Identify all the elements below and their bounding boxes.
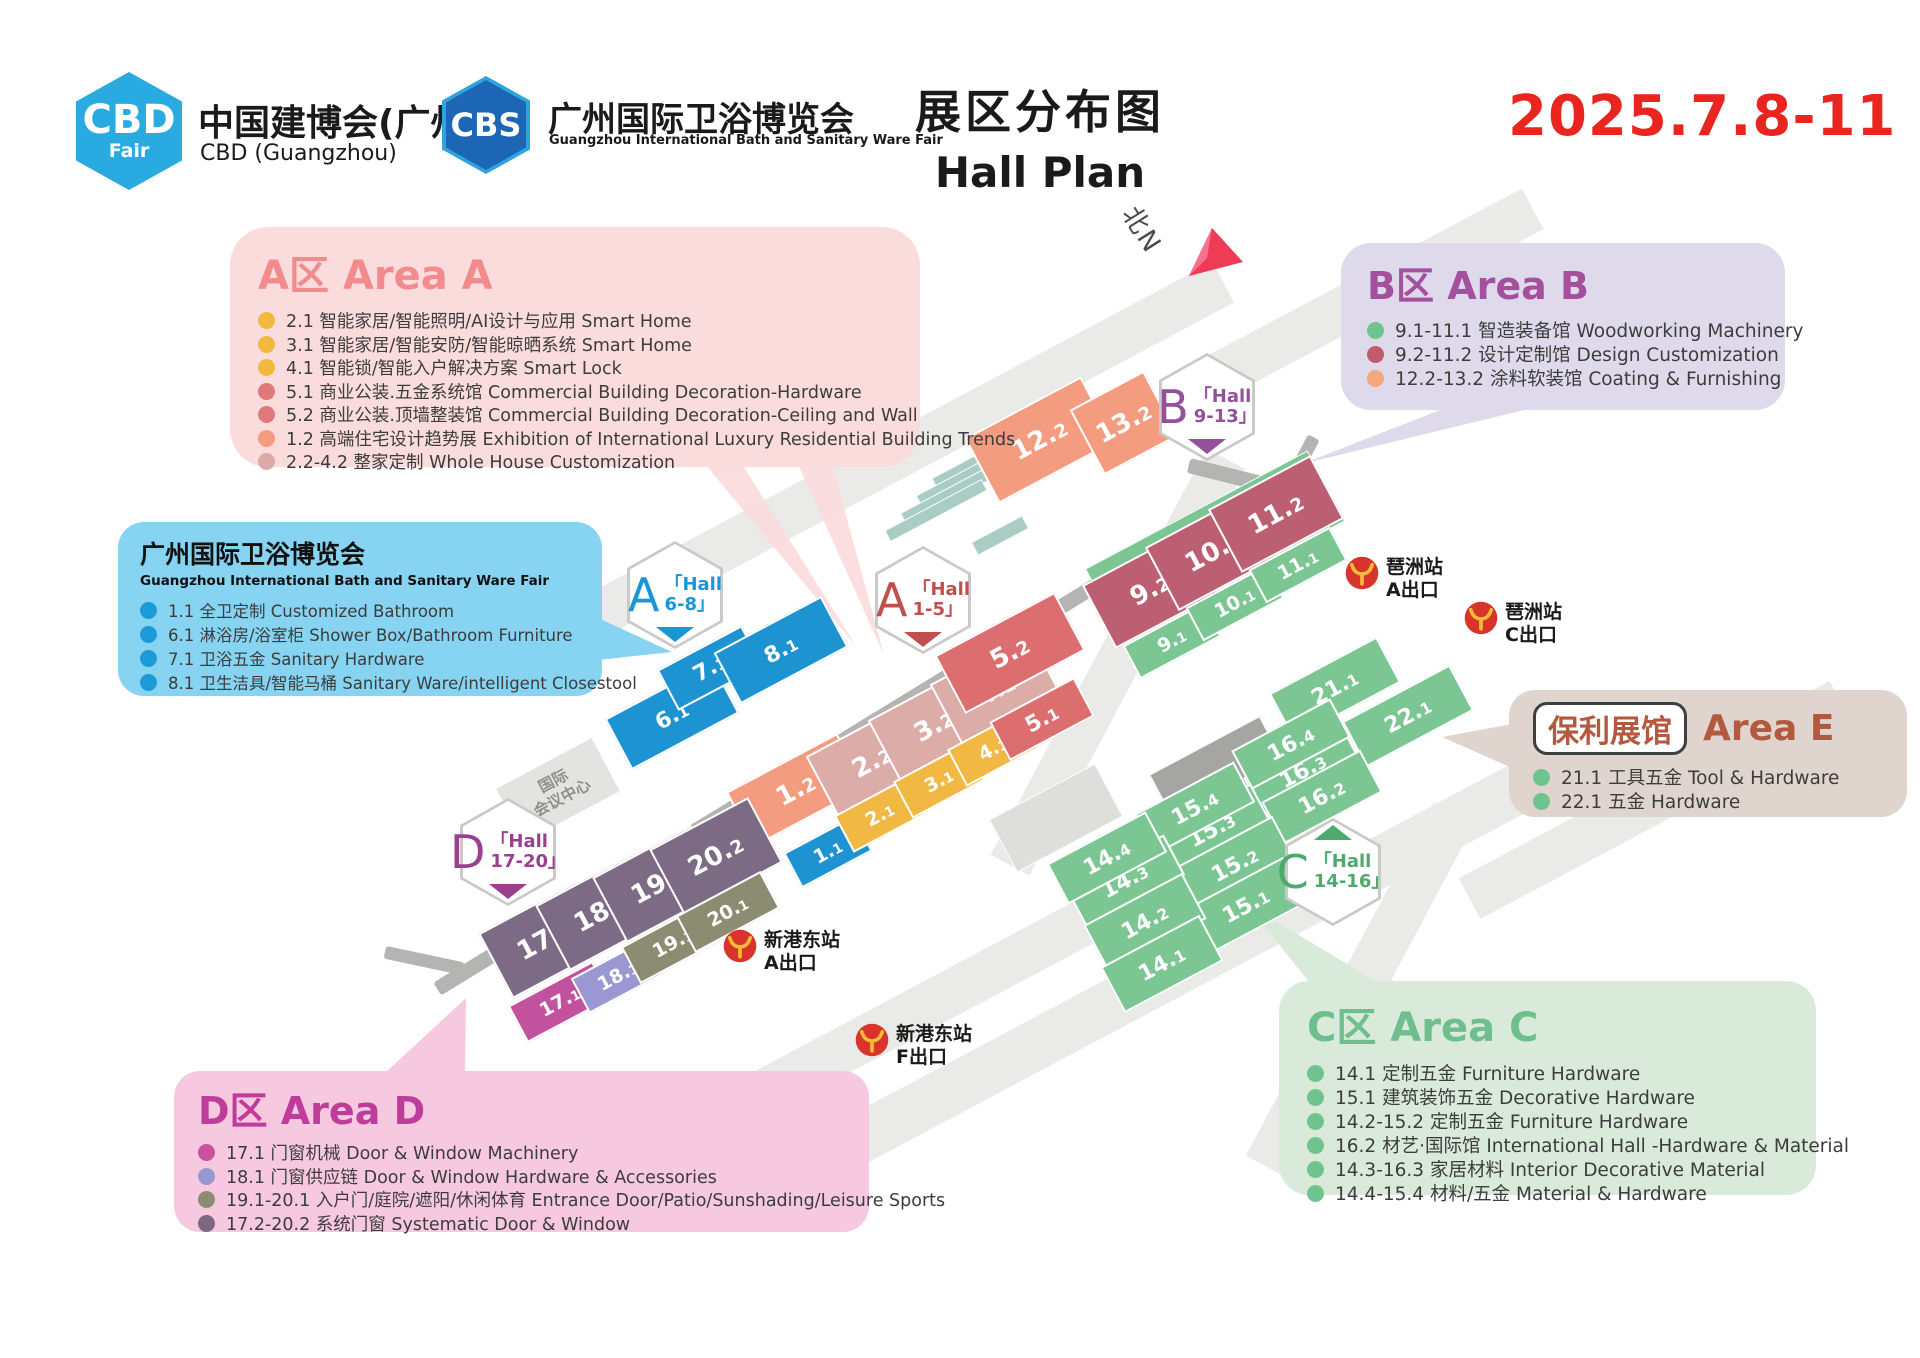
area-a-legend: 2.1 智能家居/智能照明/AI设计与应用 Smart Home3.1 智能家居… xyxy=(258,309,920,474)
metro-logo-icon xyxy=(855,1023,889,1057)
legend-dot-icon xyxy=(258,312,275,329)
legend-text: 3.1 智能家居/智能安防/智能晾晒系统 Smart Home xyxy=(286,332,692,357)
legend-item: 12.2-13.2 涂料软装馆 Coating & Furnishing xyxy=(1367,366,1785,390)
area-b-title: B区 Area B xyxy=(1367,255,1785,310)
legend-item: 15.1 建筑装饰五金 Decorative Hardware xyxy=(1307,1085,1816,1109)
legend-text: 1.1 全卫定制 Customized Bathroom xyxy=(168,598,454,622)
badge-hall-range: 「Hall1-5」 xyxy=(912,580,970,620)
legend-dot-icon xyxy=(1307,1137,1324,1154)
area-b-callout: B区 Area B 9.1-11.1 智造装备馆 Woodworking Mac… xyxy=(1341,243,1785,410)
hall-badge-A-1-5: A「Hall1-5」 xyxy=(875,546,971,654)
legend-dot-icon xyxy=(258,453,275,470)
legend-dot-icon xyxy=(1307,1065,1324,1082)
legend-dot-icon xyxy=(1367,370,1384,387)
badge-letter: A xyxy=(628,572,659,618)
legend-text: 8.1 卫生洁具/智能马桶 Sanitary Ware/intelligent … xyxy=(168,670,637,694)
legend-text: 9.2-11.2 设计定制馆 Design Customization xyxy=(1395,341,1779,367)
legend-item: 17.2-20.2 系统门窗 Systematic Door & Window xyxy=(198,1212,869,1236)
legend-dot-icon xyxy=(1307,1185,1324,1202)
area-c-callout: C区 Area C 14.1 定制五金 Furniture Hardware15… xyxy=(1279,981,1816,1195)
legend-dot-icon xyxy=(198,1144,215,1161)
legend-text: 4.1 智能锁/智能入户解决方案 Smart Lock xyxy=(286,355,622,380)
legend-item: 14.1 定制五金 Furniture Hardware xyxy=(1307,1061,1816,1085)
hall-badge-C-14-16: C「Hall14-16」 xyxy=(1285,818,1381,926)
legend-dot-icon xyxy=(1367,322,1384,339)
legend-text: 17.1 门窗机械 Door & Window Machinery xyxy=(226,1140,578,1165)
legend-item: 9.1-11.1 智造装备馆 Woodworking Machinery xyxy=(1367,318,1785,342)
area-e-callout: 保利展馆 Area E 21.1 工具五金 Tool & Hardware22.… xyxy=(1509,690,1907,817)
legend-dot-icon xyxy=(140,602,157,619)
legend-text: 5.2 商业公装.顶墙整装馆 Commercial Building Decor… xyxy=(286,402,918,427)
legend-text: 6.1 淋浴房/浴室柜 Shower Box/Bathroom Furnitur… xyxy=(168,622,573,646)
metro-station-label: 琶洲站A出口 xyxy=(1386,556,1443,602)
poly-hall-badge: 保利展馆 xyxy=(1533,702,1687,755)
area-d-title: D区 Area D xyxy=(198,1080,869,1135)
legend-text: 14.2-15.2 定制五金 Furniture Hardware xyxy=(1335,1108,1688,1134)
hall-plan-poster: CBD Fair 中国建博会(广州) CBD (Guangzhou) CBS 广… xyxy=(0,0,1920,1358)
legend-dot-icon xyxy=(1307,1113,1324,1130)
legend-text: 15.1 建筑装饰五金 Decorative Hardware xyxy=(1335,1084,1695,1110)
legend-text: 2.2-4.2 整家定制 Whole House Customization xyxy=(286,449,675,474)
badge-letter: B xyxy=(1157,384,1189,430)
legend-item: 6.1 淋浴房/浴室柜 Shower Box/Bathroom Furnitur… xyxy=(140,622,602,646)
legend-item: 22.1 五金 Hardware xyxy=(1533,789,1907,813)
legend-item: 16.2 材艺·国际馆 International Hall -Hardware… xyxy=(1307,1133,1816,1157)
badge-hall-range: 「Hall6-8」 xyxy=(664,575,722,615)
legend-dot-icon xyxy=(258,406,275,423)
legend-text: 9.1-11.1 智造装备馆 Woodworking Machinery xyxy=(1395,317,1803,343)
metro-station-琶洲站-A出口: 琶洲站A出口 xyxy=(1345,556,1443,602)
metro-station-label: 琶洲站C出口 xyxy=(1505,601,1562,647)
legend-text: 21.1 工具五金 Tool & Hardware xyxy=(1561,764,1839,790)
bath-fair-subtitle: Guangzhou International Bath and Sanitar… xyxy=(140,573,602,589)
legend-text: 18.1 门窗供应链 Door & Window Hardware & Acce… xyxy=(226,1164,717,1189)
bath-fair-callout: 广州国际卫浴博览会 Guangzhou International Bath a… xyxy=(118,522,602,696)
legend-item: 2.1 智能家居/智能照明/AI设计与应用 Smart Home xyxy=(258,309,920,333)
area-a-callout: A区 Area A 2.1 智能家居/智能照明/AI设计与应用 Smart Ho… xyxy=(230,227,920,467)
bath-fair-legend: 1.1 全卫定制 Customized Bathroom6.1 淋浴房/浴室柜 … xyxy=(140,598,602,694)
legend-dot-icon xyxy=(258,430,275,447)
hall-badge-D-17-20: D「Hall17-20」 xyxy=(460,798,556,906)
legend-item: 19.1-20.1 入户门/庭院/遮阳/休闲体育 Entrance Door/P… xyxy=(198,1188,869,1212)
legend-text: 14.3-16.3 家居材料 Interior Decorative Mater… xyxy=(1335,1156,1765,1182)
legend-item: 14.4-15.4 材料/五金 Material & Hardware xyxy=(1307,1181,1816,1205)
metro-station-label: 新港东站A出口 xyxy=(764,929,840,975)
legend-item: 5.1 商业公装.五金系统馆 Commercial Building Decor… xyxy=(258,380,920,404)
metro-station-琶洲站-C出口: 琶洲站C出口 xyxy=(1464,601,1562,647)
legend-dot-icon xyxy=(140,650,157,667)
legend-text: 16.2 材艺·国际馆 International Hall -Hardware… xyxy=(1335,1132,1849,1158)
area-e-title: Area E xyxy=(1703,708,1834,749)
area-c-legend: 14.1 定制五金 Furniture Hardware15.1 建筑装饰五金 … xyxy=(1307,1061,1816,1205)
legend-dot-icon xyxy=(140,626,157,643)
area-d-callout: D区 Area D 17.1 门窗机械 Door & Window Machin… xyxy=(174,1071,869,1232)
legend-text: 22.1 五金 Hardware xyxy=(1561,788,1740,814)
metro-station-新港东站-F出口: 新港东站F出口 xyxy=(855,1023,972,1069)
area-d-legend: 17.1 门窗机械 Door & Window Machinery18.1 门窗… xyxy=(198,1141,869,1235)
area-c-title: C区 Area C xyxy=(1307,995,1816,1053)
metro-station-label: 新港东站F出口 xyxy=(896,1023,972,1069)
legend-text: 17.2-20.2 系统门窗 Systematic Door & Window xyxy=(226,1211,630,1236)
legend-text: 5.1 商业公装.五金系统馆 Commercial Building Decor… xyxy=(286,379,862,404)
legend-item: 1.1 全卫定制 Customized Bathroom xyxy=(140,598,602,622)
legend-item: 5.2 商业公装.顶墙整装馆 Commercial Building Decor… xyxy=(258,403,920,427)
metro-logo-icon xyxy=(1345,556,1379,590)
area-b-legend: 9.1-11.1 智造装备馆 Woodworking Machinery9.2-… xyxy=(1367,318,1785,390)
legend-dot-icon xyxy=(258,383,275,400)
legend-item: 14.3-16.3 家居材料 Interior Decorative Mater… xyxy=(1307,1157,1816,1181)
legend-text: 2.1 智能家居/智能照明/AI设计与应用 Smart Home xyxy=(286,308,692,333)
metro-logo-icon xyxy=(1464,601,1498,635)
bath-fair-title: 广州国际卫浴博览会 xyxy=(140,535,602,571)
badge-hall-range: 「Hall14-16」 xyxy=(1314,852,1390,892)
badge-letter: C xyxy=(1277,849,1309,895)
badge-letter: D xyxy=(450,829,485,875)
legend-text: 19.1-20.1 入户门/庭院/遮阳/休闲体育 Entrance Door/P… xyxy=(226,1187,945,1212)
legend-dot-icon xyxy=(140,674,157,691)
legend-text: 14.4-15.4 材料/五金 Material & Hardware xyxy=(1335,1180,1707,1206)
legend-dot-icon xyxy=(1307,1089,1324,1106)
hall-badge-B-9-13: B「Hall9-13」 xyxy=(1159,353,1255,461)
legend-dot-icon xyxy=(1367,346,1384,363)
legend-dot-icon xyxy=(198,1168,215,1185)
legend-item: 4.1 智能锁/智能入户解决方案 Smart Lock xyxy=(258,356,920,380)
legend-dot-icon xyxy=(198,1191,215,1208)
legend-item: 1.2 高端住宅设计趋势展 Exhibition of Internationa… xyxy=(258,427,920,451)
legend-dot-icon xyxy=(198,1215,215,1232)
badge-hall-range: 「Hall9-13」 xyxy=(1194,387,1257,427)
badge-hall-range: 「Hall17-20」 xyxy=(490,832,566,872)
legend-item: 2.2-4.2 整家定制 Whole House Customization xyxy=(258,450,920,474)
north-arrow-icon xyxy=(1189,228,1243,276)
metro-station-新港东站-A出口: 新港东站A出口 xyxy=(723,929,840,975)
legend-dot-icon xyxy=(1307,1161,1324,1178)
legend-item: 8.1 卫生洁具/智能马桶 Sanitary Ware/intelligent … xyxy=(140,670,602,694)
legend-item: 17.1 门窗机械 Door & Window Machinery xyxy=(198,1141,869,1165)
legend-text: 14.1 定制五金 Furniture Hardware xyxy=(1335,1060,1640,1086)
legend-item: 9.2-11.2 设计定制馆 Design Customization xyxy=(1367,342,1785,366)
legend-item: 18.1 门窗供应链 Door & Window Hardware & Acce… xyxy=(198,1165,869,1189)
metro-logo-icon xyxy=(723,929,757,963)
legend-item: 7.1 卫浴五金 Sanitary Hardware xyxy=(140,646,602,670)
hall-badge-A-6-8: A「Hall6-8」 xyxy=(627,541,723,649)
legend-item: 21.1 工具五金 Tool & Hardware xyxy=(1533,765,1907,789)
legend-dot-icon xyxy=(258,359,275,376)
legend-text: 1.2 高端住宅设计趋势展 Exhibition of Internationa… xyxy=(286,426,1015,451)
legend-text: 7.1 卫浴五金 Sanitary Hardware xyxy=(168,646,424,670)
legend-dot-icon xyxy=(1533,769,1550,786)
area-e-title-row: 保利展馆 Area E xyxy=(1533,702,1907,755)
area-e-legend: 21.1 工具五金 Tool & Hardware22.1 五金 Hardwar… xyxy=(1533,765,1907,813)
legend-item: 14.2-15.2 定制五金 Furniture Hardware xyxy=(1307,1109,1816,1133)
area-a-title: A区 Area A xyxy=(258,243,920,301)
legend-text: 12.2-13.2 涂料软装馆 Coating & Furnishing xyxy=(1395,365,1781,391)
legend-item: 3.1 智能家居/智能安防/智能晾晒系统 Smart Home xyxy=(258,333,920,357)
legend-dot-icon xyxy=(1533,793,1550,810)
legend-dot-icon xyxy=(258,336,275,353)
badge-letter: A xyxy=(876,577,907,623)
